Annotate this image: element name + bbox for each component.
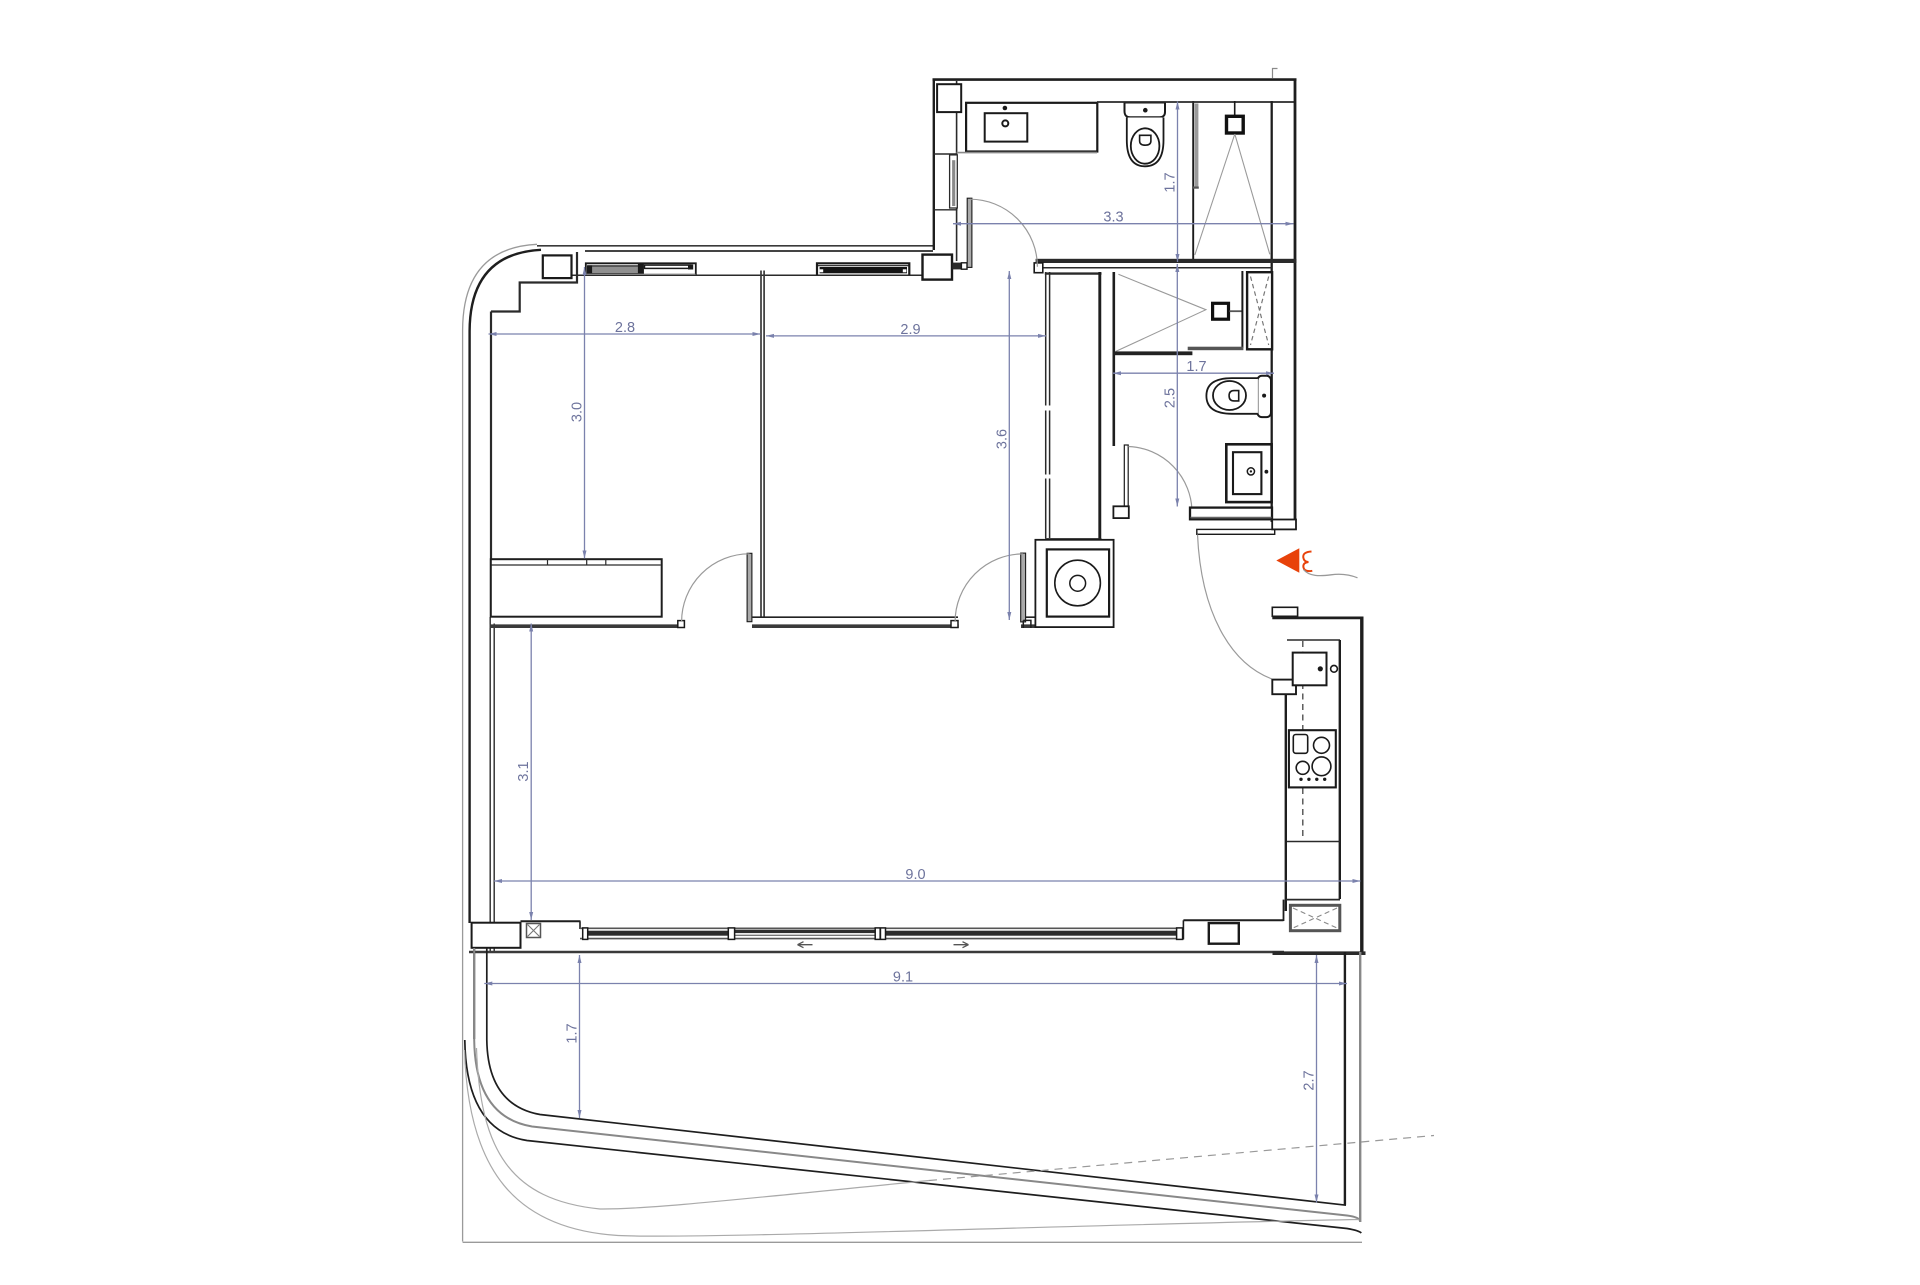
- svg-text:2.8: 2.8: [615, 320, 635, 336]
- svg-text:3.1: 3.1: [516, 761, 532, 781]
- svg-text:3.0: 3.0: [570, 402, 586, 422]
- svg-text:2.9: 2.9: [900, 322, 920, 338]
- svg-text:2.5: 2.5: [1162, 388, 1178, 408]
- svg-text:2.7: 2.7: [1302, 1070, 1318, 1090]
- svg-text:9.1: 9.1: [893, 970, 913, 986]
- svg-text:3.3: 3.3: [1103, 210, 1123, 226]
- svg-text:3.6: 3.6: [994, 429, 1010, 449]
- svg-text:1.7: 1.7: [1163, 172, 1179, 192]
- svg-text:1.7: 1.7: [1186, 359, 1206, 375]
- svg-text:9.0: 9.0: [905, 867, 925, 883]
- svg-text:1.7: 1.7: [565, 1023, 581, 1043]
